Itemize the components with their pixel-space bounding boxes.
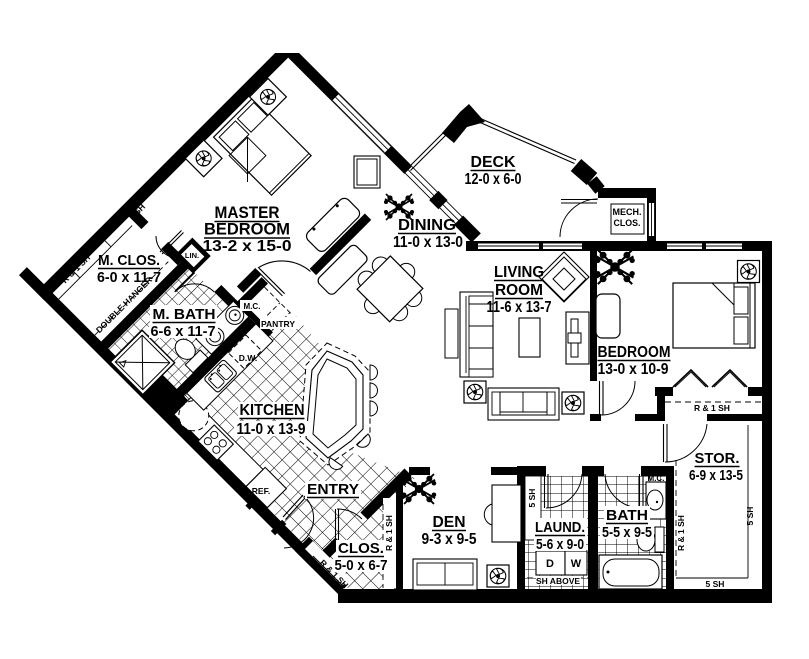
svg-text:R & 1 SH: R & 1 SH	[694, 403, 730, 413]
svg-text:M. BATH: M. BATH	[153, 306, 216, 323]
svg-text:11-0 x 13-9: 11-0 x 13-9	[237, 421, 306, 438]
svg-text:R & 1 SH: R & 1 SH	[384, 515, 394, 551]
svg-text:BEDROOM: BEDROOM	[204, 220, 290, 239]
svg-text:CLOS.: CLOS.	[338, 540, 384, 557]
svg-text:REF.: REF.	[252, 486, 270, 496]
svg-text:12-0 x 6-0: 12-0 x 6-0	[465, 171, 522, 188]
svg-text:D.W.: D.W.	[239, 353, 257, 363]
svg-text:STOR.: STOR.	[695, 450, 740, 467]
svg-text:M.C.: M.C.	[648, 474, 665, 483]
svg-text:11-0 x 13-0: 11-0 x 13-0	[393, 234, 463, 251]
svg-text:DECK: DECK	[471, 154, 516, 171]
svg-text:5 SH: 5 SH	[527, 489, 537, 508]
svg-text:5-6 x 9-0: 5-6 x 9-0	[536, 537, 584, 553]
svg-text:BEDROOM: BEDROOM	[598, 344, 671, 361]
svg-text:13-0 x 10-9: 13-0 x 10-9	[598, 361, 669, 378]
svg-text:LIN.: LIN.	[185, 251, 199, 260]
svg-text:9-3 x 9-5: 9-3 x 9-5	[422, 531, 477, 548]
svg-text:DEN: DEN	[433, 514, 466, 531]
svg-text:ENTRY: ENTRY	[307, 481, 359, 498]
svg-text:D: D	[546, 558, 554, 570]
svg-text:DINING: DINING	[398, 217, 456, 234]
svg-text:13-2 x 15-0: 13-2 x 15-0	[203, 238, 292, 255]
svg-text:W: W	[571, 558, 582, 570]
svg-text:11-6 x 13-7: 11-6 x 13-7	[487, 299, 552, 316]
svg-text:KITCHEN: KITCHEN	[240, 402, 305, 419]
svg-text:LIVING: LIVING	[494, 264, 544, 281]
svg-text:5 SH: 5 SH	[745, 507, 755, 526]
svg-text:SH ABOVE: SH ABOVE	[536, 576, 580, 586]
svg-text:BATH: BATH	[606, 507, 648, 524]
svg-text:ROOM: ROOM	[495, 282, 543, 299]
svg-text:PANTRY: PANTRY	[261, 319, 295, 329]
svg-text:5-5 x 9-5: 5-5 x 9-5	[602, 524, 652, 541]
svg-text:R & 1 SH: R & 1 SH	[676, 515, 686, 551]
svg-text:5 SH: 5 SH	[706, 579, 725, 589]
svg-text:M.C.: M.C.	[244, 302, 261, 311]
svg-text:M. CLOS.: M. CLOS.	[98, 252, 160, 269]
svg-text:MECH.: MECH.	[613, 207, 642, 217]
svg-text:CLOS.: CLOS.	[614, 218, 641, 228]
svg-text:6-6 x 11-7: 6-6 x 11-7	[151, 323, 216, 340]
svg-text:LAUND.: LAUND.	[535, 520, 585, 536]
svg-text:5-0 x 6-7: 5-0 x 6-7	[335, 557, 388, 574]
svg-text:6-9 x 13-5: 6-9 x 13-5	[689, 467, 743, 484]
